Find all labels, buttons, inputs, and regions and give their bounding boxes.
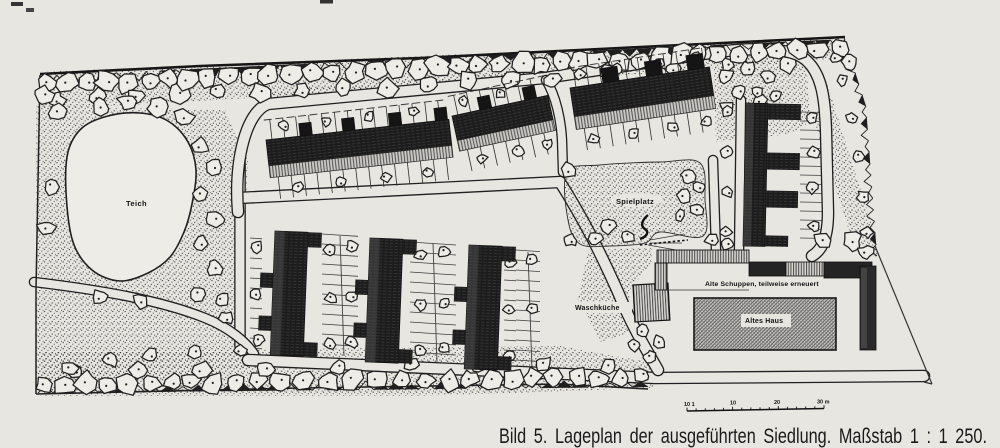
svg-text:10 1: 10 1 xyxy=(684,402,695,408)
svg-text:Spielplatz: Spielplatz xyxy=(616,197,654,206)
svg-text:20: 20 xyxy=(774,400,780,406)
svg-text:Waschküche: Waschküche xyxy=(575,305,620,312)
svg-text:Alte Schuppen, teilweise erneu: Alte Schuppen, teilweise erneuert xyxy=(705,281,819,288)
svg-text:Altes Haus: Altes Haus xyxy=(745,318,783,325)
svg-text:30 m: 30 m xyxy=(817,400,830,406)
svg-text:Teich: Teich xyxy=(126,199,147,208)
svg-text:Bild 5. Lageplan der ausgefüh: Bild 5. Lageplan der ausgeführten Siedlu… xyxy=(499,425,987,448)
svg-text:10: 10 xyxy=(730,401,736,407)
